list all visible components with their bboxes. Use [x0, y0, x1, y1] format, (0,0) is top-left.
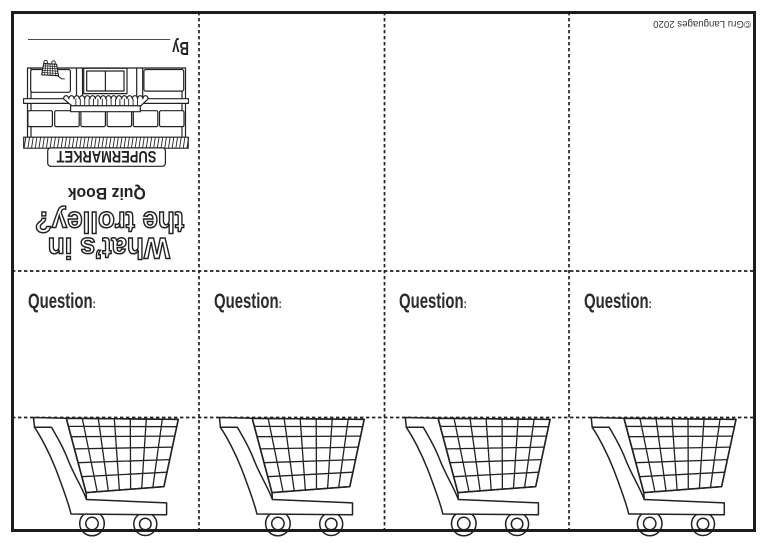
svg-text:SUPERMARKET: SUPERMARKET — [57, 146, 157, 164]
